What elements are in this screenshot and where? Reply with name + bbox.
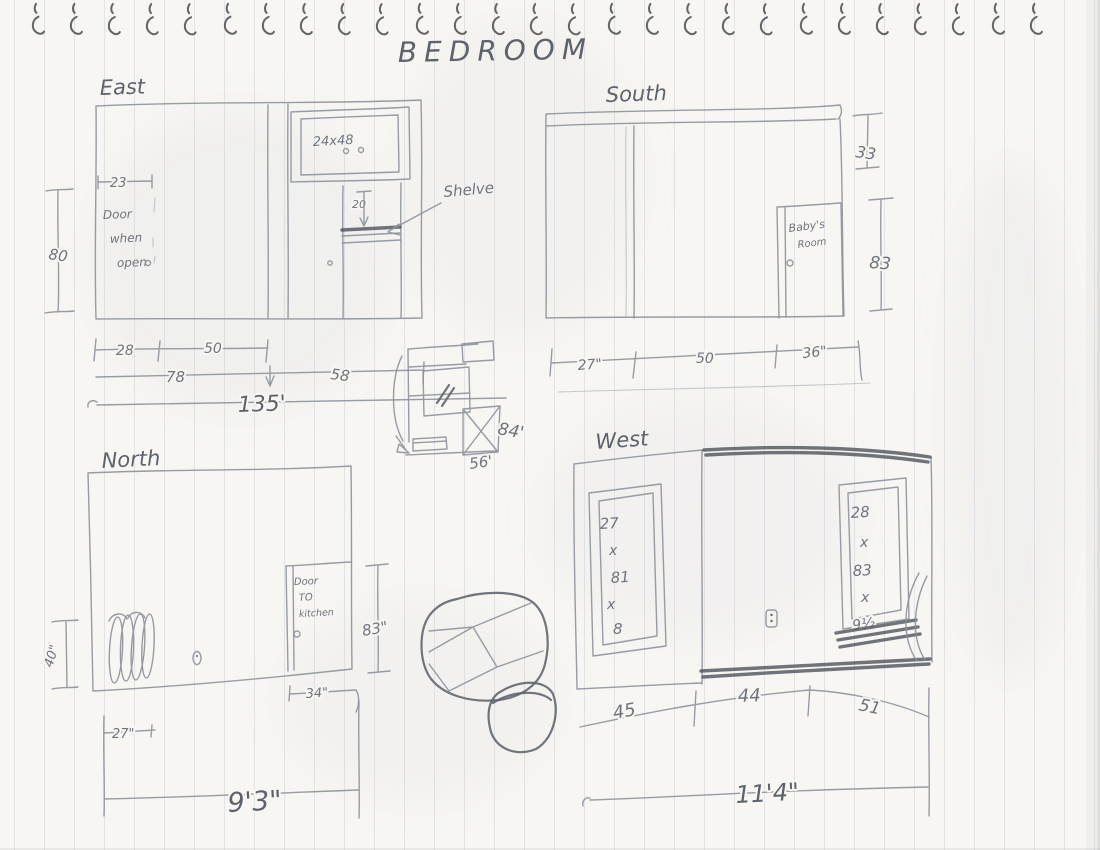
door-note-1: Door bbox=[103, 207, 133, 222]
east-door-width: 23 bbox=[110, 176, 127, 191]
plan-depth-dim: 84' bbox=[496, 419, 525, 443]
kitchen-door-note-1: Door bbox=[294, 576, 319, 588]
right-mirror-dim-3: 83 bbox=[852, 561, 872, 580]
east-dim-28: 28 bbox=[116, 343, 134, 359]
outlet-dot bbox=[196, 655, 198, 657]
north-label: North bbox=[101, 446, 161, 473]
door-note-3: open bbox=[117, 255, 147, 270]
south-wall-division bbox=[634, 126, 635, 318]
left-mirror-dim-1: 27 bbox=[599, 514, 619, 533]
west-bottom-edge bbox=[701, 659, 930, 677]
outlet-dot bbox=[770, 620, 772, 622]
radiator-coils bbox=[108, 612, 156, 683]
south-dim-27: 27" bbox=[577, 356, 602, 374]
north-offset: 27" bbox=[112, 727, 135, 742]
cabinet-size-note: 24x48 bbox=[312, 133, 354, 150]
east-total-width: 135' bbox=[237, 391, 286, 418]
south-dim-50: 50 bbox=[696, 351, 714, 367]
east-dim-78: 78 bbox=[166, 368, 185, 386]
plan-width-dim: 56' bbox=[468, 452, 493, 473]
west-total-width: 11'4" bbox=[735, 778, 800, 809]
north-door-width: 34" bbox=[305, 685, 329, 702]
south-door-height: 83 bbox=[869, 253, 892, 274]
cabinet-knob bbox=[344, 149, 349, 154]
right-mirror-dim-2: x bbox=[859, 535, 869, 551]
outlet bbox=[193, 652, 201, 665]
door-note-2: when bbox=[109, 230, 142, 246]
west-label: West bbox=[595, 426, 650, 454]
closet-plan-sketch: 84' 56' bbox=[394, 341, 526, 473]
kitchen-door-note-2: TO bbox=[298, 592, 313, 604]
south-upper-dim: 33 bbox=[854, 142, 877, 164]
left-mirror-dim-2: x bbox=[608, 543, 618, 559]
plan-door-marks bbox=[437, 385, 454, 406]
right-mirror-dim-1: 28 bbox=[850, 503, 870, 522]
babys-room-note-2: Room bbox=[797, 237, 827, 251]
door-knob bbox=[787, 260, 793, 266]
bedroom-elevation-sketch: BEDROOM East 24x48 20 Shelve 23 Door whe… bbox=[0, 0, 1100, 850]
west-dim-44: 44 bbox=[737, 685, 761, 707]
kitchen-door-note-3: kitchen bbox=[299, 607, 335, 620]
page-title: BEDROOM bbox=[398, 33, 594, 69]
notebook-page: BEDROOM East 24x48 20 Shelve 23 Door whe… bbox=[0, 0, 1100, 850]
right-mirror-dim-4: x bbox=[860, 590, 870, 606]
left-mirror-dim-5: 8 bbox=[613, 620, 623, 638]
west-dim-45: 45 bbox=[611, 699, 637, 724]
south-label: South bbox=[605, 81, 667, 107]
door-knob bbox=[294, 631, 300, 637]
north-total-width: 9'3" bbox=[227, 785, 283, 819]
left-mirror-dim-3: 81 bbox=[610, 568, 630, 587]
east-label: East bbox=[99, 74, 146, 100]
east-height: 80 bbox=[47, 245, 68, 265]
left-mirror-dim-4: x bbox=[606, 597, 616, 613]
babys-room-note-1: Baby's bbox=[788, 218, 826, 235]
cabinet-knob bbox=[359, 148, 364, 153]
radiator-height: 40" bbox=[42, 643, 63, 669]
outlet-dot bbox=[770, 614, 772, 616]
east-dim-58: 58 bbox=[330, 365, 351, 385]
west-dim-51: 51 bbox=[857, 695, 882, 719]
east-dim-50: 50 bbox=[204, 341, 222, 357]
south-dim-36: 36" bbox=[802, 344, 828, 362]
